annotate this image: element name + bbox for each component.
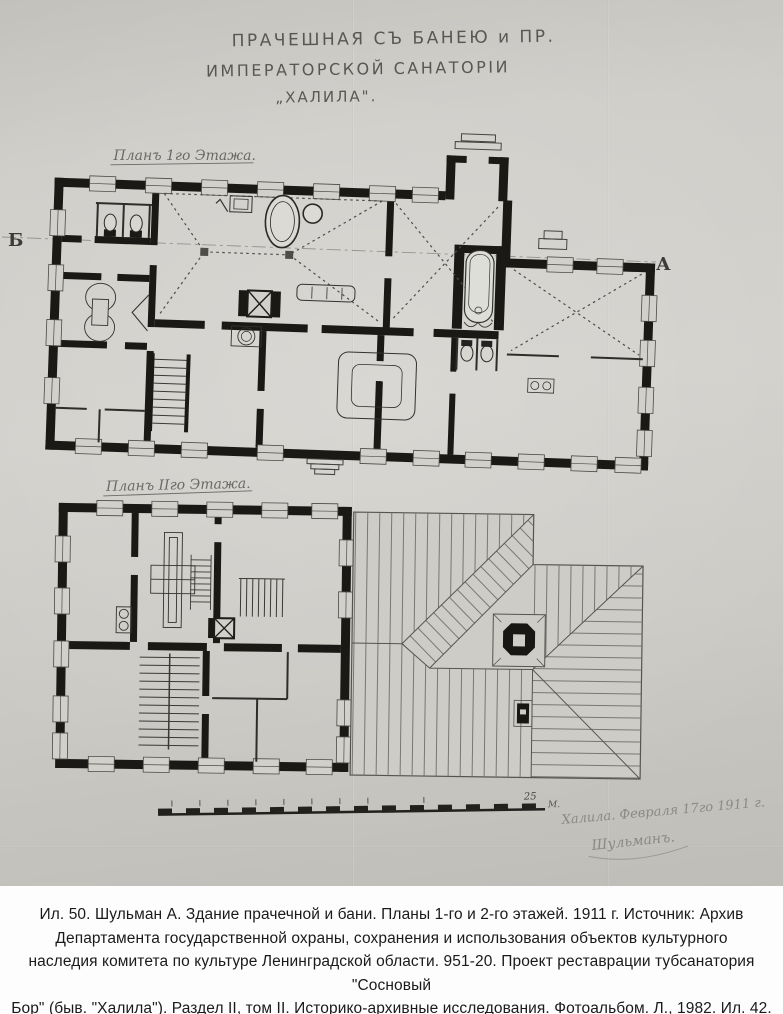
- plan1-label: Планъ 1го Этажа.: [111, 148, 256, 165]
- plan2-partitions: [211, 651, 288, 762]
- plan-first-floor: Планъ 1го Этажа.: [42, 120, 663, 486]
- archival-photo: ПРАЧЕШНАЯ СЪ БАНЕЮ и ПР. ИМПЕРАТОРСКОЙ С…: [0, 0, 783, 886]
- handwritten-annotation: Халила. Февраля 17го 1911 г. Шульманъ.: [560, 795, 766, 863]
- caption-line-3: наследия комитета по культуре Ленинградс…: [0, 950, 783, 997]
- plan2-fixtures: [114, 532, 285, 751]
- staircase-2: [138, 653, 199, 750]
- vault-node: [200, 248, 208, 256]
- section-letter-a: А: [656, 254, 671, 275]
- vault-node: [285, 251, 293, 259]
- section-letter-b: Б: [8, 230, 23, 251]
- caption-line-1: Ил. 50. Шульман А. Здание прачечной и ба…: [0, 903, 783, 927]
- title-line-1: ПРАЧЕШНАЯ СЪ БАНЕЮ и ПР.: [232, 27, 556, 52]
- scale-unit: М.: [547, 800, 560, 810]
- scale-bar: 25 М.: [158, 791, 560, 816]
- caption-line-2: Департамента государственной охраны, сох…: [0, 927, 783, 951]
- svg-text:Планъ 1го Этажа.: Планъ 1го Этажа.: [113, 148, 256, 164]
- album-page: ПРАЧЕШНАЯ СЪ БАНЕЮ и ПР. ИМПЕРАТОРСКОЙ С…: [0, 0, 783, 1014]
- scale-ticks: [172, 797, 424, 807]
- staircase: [148, 353, 191, 432]
- plan2-label: Планъ IIго Этажа.: [103, 476, 252, 496]
- caption-line-4: Бор" (быв. "Халила"). Раздел II, том II.…: [0, 997, 783, 1014]
- figure-caption: Ил. 50. Шульман А. Здание прачечной и ба…: [0, 886, 783, 1014]
- ladder-stair: [190, 555, 211, 610]
- handwritten-date: Халила. Февраля 17го 1911 г.: [560, 795, 766, 828]
- drying-racks: [238, 578, 285, 617]
- scale-number: 25: [523, 791, 537, 802]
- handwritten-signature: Шульманъ.: [590, 829, 676, 854]
- drawing-title: ПРАЧЕШНАЯ СЪ БАНЕЮ и ПР. ИМПЕРАТОРСКОЙ С…: [205, 27, 556, 108]
- blueprint-drawing: ПРАЧЕШНАЯ СЪ БАНЕЮ и ПР. ИМПЕРАТОРСКОЙ С…: [0, 0, 783, 886]
- plan-second-floor: Планъ IIго Этажа.: [52, 473, 644, 779]
- mangle-machine: [150, 532, 195, 628]
- roof-plan: [350, 512, 644, 779]
- title-line-2: ИМПЕРАТОРСКОЙ САНАТОРІИ: [206, 57, 510, 80]
- plan2-walls: [55, 503, 352, 772]
- chimney: [493, 614, 546, 667]
- entrance-steps: [307, 129, 571, 483]
- plan1-walls: [45, 142, 658, 471]
- title-line-3: „ХАЛИЛА".: [275, 87, 377, 106]
